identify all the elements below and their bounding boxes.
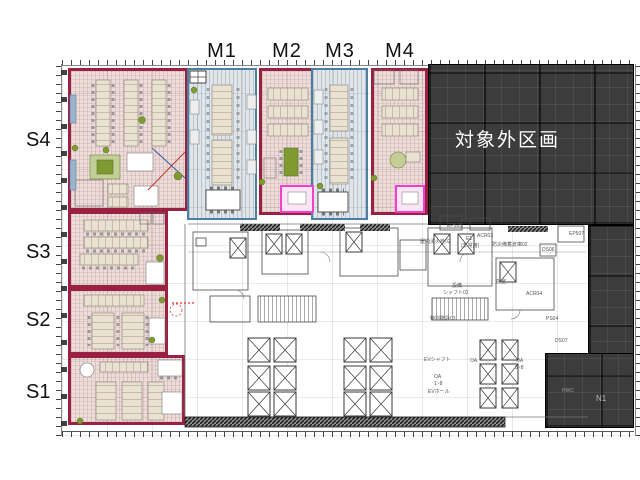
- core-annotation-text: 特別階段03: [430, 317, 456, 322]
- zone-m1: [187, 68, 257, 220]
- zone-label-m3: M3: [325, 40, 355, 63]
- zone-label-m1: M1: [207, 40, 237, 63]
- zone-label-s1: S1: [26, 381, 50, 404]
- core-annotation-text: EVシャフト: [424, 358, 451, 363]
- core-annotation-text: EP507: [569, 232, 584, 237]
- grid-ticks-bottom: [62, 431, 634, 437]
- zone-label-m4: M4: [385, 40, 415, 63]
- core-annotation-text: 1~8: [434, 382, 442, 387]
- zone-s4: [68, 68, 188, 211]
- core-annotation-text: シャフト02: [443, 291, 469, 296]
- core-annotation-text: E1: [466, 237, 472, 242]
- zone-s3: [68, 211, 168, 288]
- zone-label-m2: M2: [272, 40, 302, 63]
- core-annotation-text: 防災備蓄倉庫02: [492, 243, 528, 248]
- elevator-shafts: [230, 232, 518, 416]
- zone-m4: [371, 68, 428, 215]
- core-annotation-text: OA: [434, 375, 441, 380]
- zone-s2: [68, 288, 168, 355]
- core-annotation-text: DS07: [555, 339, 568, 344]
- perimeter-hatch: [185, 224, 548, 427]
- core-rooms: [185, 216, 588, 417]
- zone-label-s4: S4: [26, 129, 50, 152]
- floor-plan-canvas: 対象外区画: [0, 0, 640, 480]
- excluded-area-label: 対象外区画: [455, 125, 560, 152]
- core-annotation-text: PS04: [546, 317, 558, 322]
- column-markers: [61, 70, 67, 426]
- core-annotation-text: OA: [516, 359, 523, 364]
- core-annotation-text: 設備: [452, 284, 462, 289]
- zone-label-s2: S2: [26, 309, 50, 332]
- core-annotation-text: EVホール: [428, 390, 450, 395]
- excluded-area-top-right: 対象外区画: [428, 64, 634, 225]
- grid-ticks-right: [635, 64, 640, 436]
- core-stairs: [258, 296, 488, 322]
- core-annotation-text: 前室: [496, 280, 506, 285]
- excluded-area-bottom-right: [545, 353, 634, 428]
- core-annotation-text: ACR03: [477, 234, 493, 239]
- zone-m2: [259, 68, 315, 215]
- core-annotation-text: OA: [470, 359, 477, 364]
- core-annotation-text: (非常用): [461, 244, 479, 249]
- core-annotation-text: DS06: [542, 248, 555, 253]
- core-annotation-text: 屋内消火栓02: [420, 240, 451, 245]
- zone-label-s3: S3: [26, 241, 50, 264]
- zone-s1: [68, 355, 185, 425]
- core-annotation-text: 5~8: [515, 366, 523, 371]
- zone-m3: [311, 68, 368, 220]
- core-annotation-text: ACR04: [526, 292, 542, 297]
